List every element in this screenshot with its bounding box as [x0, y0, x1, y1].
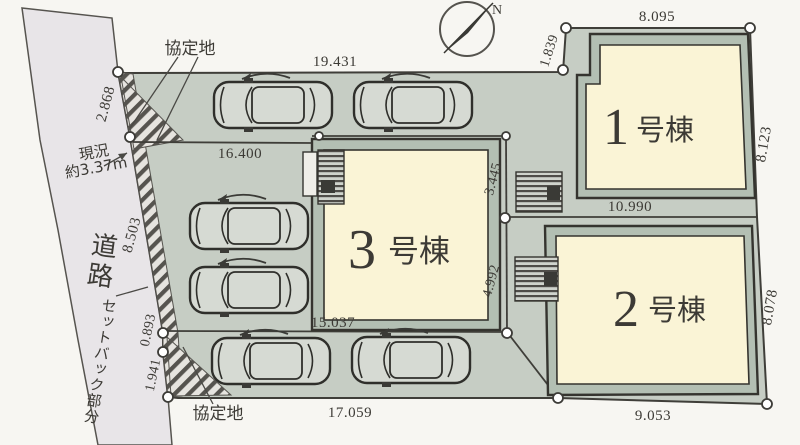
building-2-number: 2 [613, 281, 639, 338]
car-icon [190, 194, 308, 253]
building-3-porch [318, 150, 344, 204]
dim-lot1-north: 8.095 [639, 9, 675, 25]
car-icon [354, 73, 472, 132]
dim-top-width: 19.431 [313, 54, 357, 70]
building-3-number: 3 [348, 219, 376, 281]
dim-lot3-south: 15.037 [311, 315, 355, 331]
dim-lot2-east: 8.078 [759, 288, 781, 326]
agreement-area-top-label: 協定地 [165, 39, 216, 59]
building-3-side-structure [303, 152, 317, 196]
building-3: 3 号棟 [303, 139, 500, 330]
dim-lot1-east: 8.123 [753, 125, 775, 163]
building-1-porch [516, 172, 562, 212]
dim-middle-width: 16.400 [218, 146, 262, 162]
site-plan-drawing: 3 号棟 1 号棟 2 号棟 [0, 0, 800, 445]
dim-bottom-width: 17.059 [328, 405, 372, 421]
building-1-number: 1 [603, 99, 629, 156]
dim-lot1-step: 1.839 [537, 33, 561, 69]
dim-lot2-south: 9.053 [635, 408, 671, 424]
car-icon [190, 258, 308, 317]
building-2-suffix: 号棟 [648, 293, 706, 327]
building-2-porch [515, 257, 558, 301]
compass-icon: N [440, 2, 502, 56]
agreement-area-bottom-label: 協定地 [193, 404, 244, 424]
building-1: 1 号棟 [577, 34, 755, 198]
car-icon [352, 328, 470, 387]
building-3-entry-icon [321, 180, 335, 193]
car-icon [214, 73, 332, 132]
dim-lot1-lot2-boundary: 10.990 [608, 199, 652, 215]
building-2: 2 号棟 [545, 226, 758, 395]
building-1-suffix: 号棟 [636, 113, 694, 147]
car-icon [212, 329, 330, 388]
compass-north-label: N [492, 3, 502, 18]
building-3-suffix: 号棟 [388, 234, 450, 270]
site-plan-page: 3 号棟 1 号棟 2 号棟 [0, 0, 800, 445]
